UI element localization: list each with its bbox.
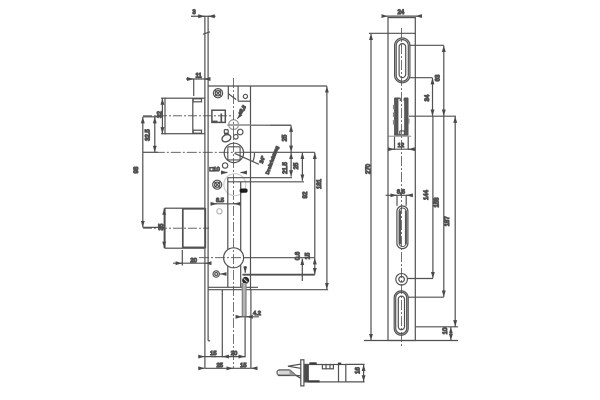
svg-text:10: 10 bbox=[443, 327, 449, 334]
svg-text:63: 63 bbox=[436, 74, 442, 81]
svg-text:11: 11 bbox=[195, 73, 202, 79]
svg-text:92: 92 bbox=[303, 191, 309, 198]
svg-text:21.5: 21.5 bbox=[283, 162, 289, 174]
svg-text:3: 3 bbox=[192, 10, 196, 16]
svg-text:15: 15 bbox=[305, 252, 311, 259]
svg-text:32: 32 bbox=[158, 111, 164, 118]
svg-text:181: 181 bbox=[317, 178, 323, 189]
svg-text:12: 12 bbox=[398, 143, 404, 149]
svg-text:4.2: 4.2 bbox=[253, 311, 261, 317]
svg-text:15: 15 bbox=[240, 363, 246, 369]
svg-text:□10: □10 bbox=[210, 167, 220, 173]
svg-text:25: 25 bbox=[283, 134, 289, 141]
svg-text:144: 144 bbox=[424, 189, 430, 200]
svg-text:35: 35 bbox=[159, 223, 165, 230]
svg-text:34: 34 bbox=[425, 94, 431, 101]
svg-text:24°: 24° bbox=[259, 155, 267, 164]
svg-text:Drehrichtung: Drehrichtung bbox=[265, 145, 280, 175]
svg-text:32.5: 32.5 bbox=[146, 129, 152, 141]
svg-text:158: 158 bbox=[434, 197, 440, 208]
svg-text:20: 20 bbox=[190, 258, 196, 264]
svg-text:25: 25 bbox=[294, 162, 300, 169]
svg-text:24: 24 bbox=[398, 10, 405, 16]
svg-text:187: 187 bbox=[445, 216, 451, 227]
svg-text:0.6: 0.6 bbox=[295, 251, 301, 260]
svg-text:20: 20 bbox=[231, 351, 237, 357]
svg-text:⌀8,5: ⌀8,5 bbox=[237, 104, 248, 116]
svg-text:15: 15 bbox=[210, 351, 216, 357]
svg-text:98: 98 bbox=[134, 166, 140, 173]
svg-text:16: 16 bbox=[355, 367, 361, 374]
svg-text:25: 25 bbox=[216, 363, 222, 369]
svg-text:270: 270 bbox=[366, 163, 372, 174]
